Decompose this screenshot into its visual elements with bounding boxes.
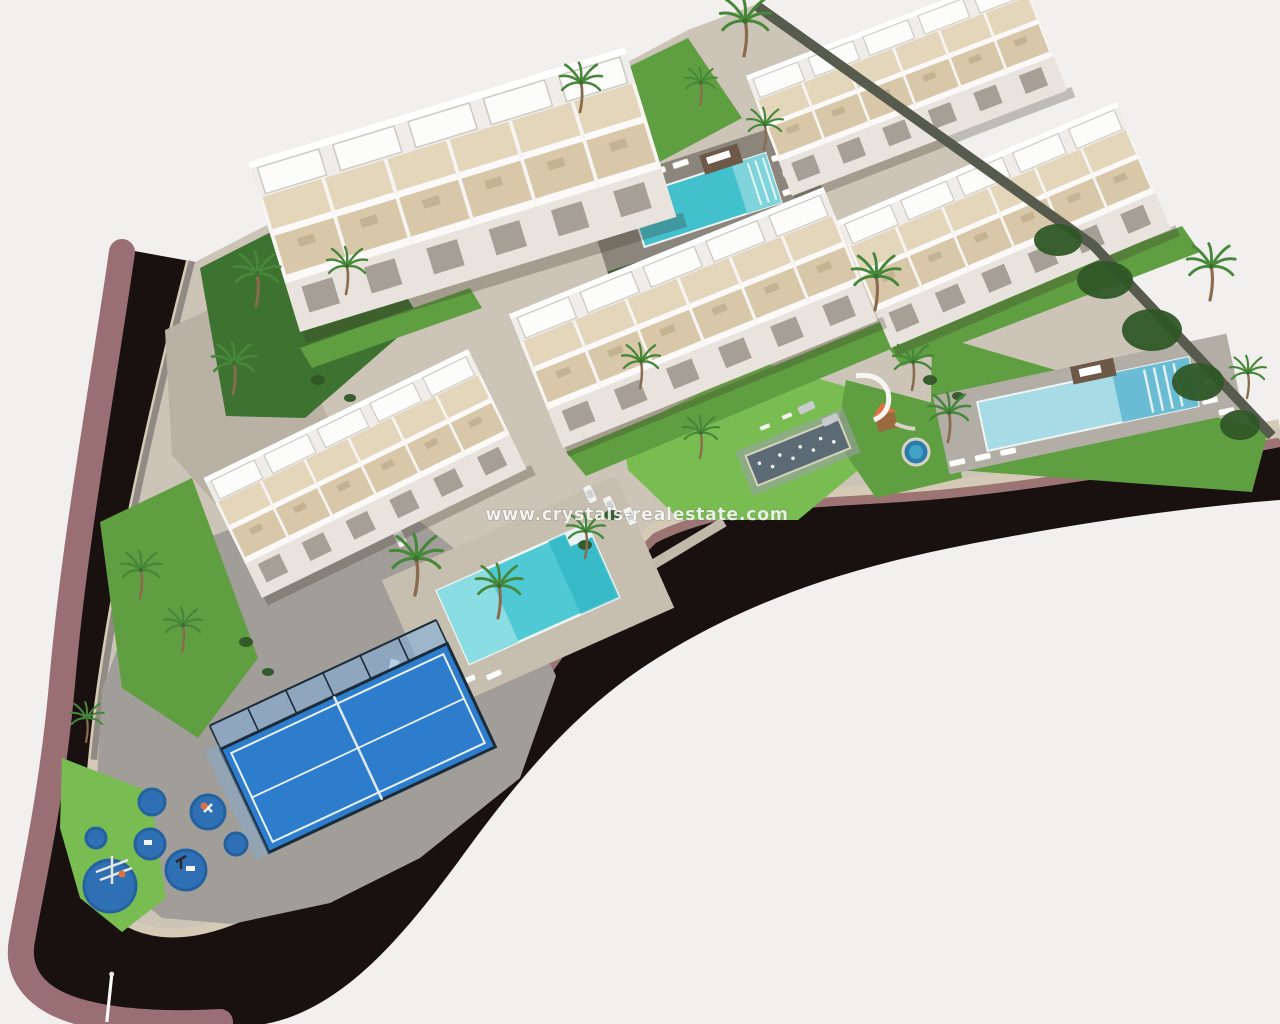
masterplan-render: www.crystals-realestate.com <box>0 0 1280 1024</box>
render-image: www.crystals-realestate.com <box>0 0 1280 1024</box>
watermark-text: www.crystals-realestate.com <box>485 505 788 525</box>
